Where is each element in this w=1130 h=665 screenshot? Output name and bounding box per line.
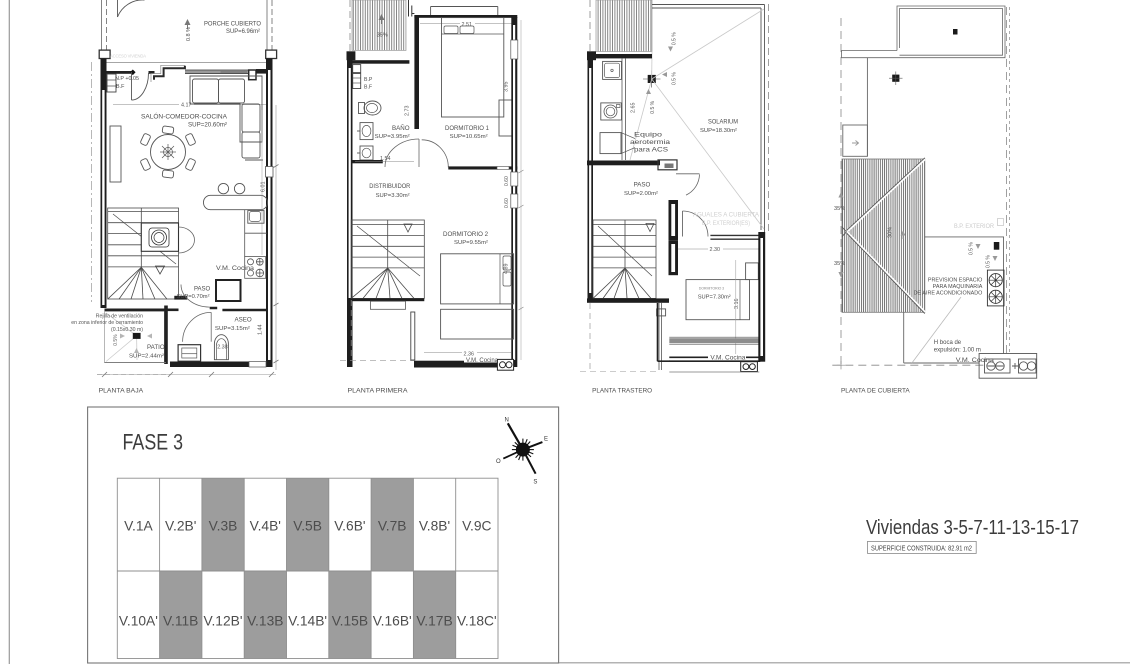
svg-text:FASE 3: FASE 3 <box>123 430 184 455</box>
svg-text:0.60: 0.60 <box>504 176 510 186</box>
svg-text:2.38: 2.38 <box>217 344 228 350</box>
svg-text:SUP=3.95m²: SUP=3.95m² <box>375 134 410 140</box>
svg-text:V.11B: V.11B <box>163 614 198 629</box>
svg-text:B.F: B.F <box>116 84 125 90</box>
svg-text:2.73: 2.73 <box>405 106 411 117</box>
svg-text:PATIO: PATIO <box>147 344 165 351</box>
svg-text:DORMITORIO 3: DORMITORIO 3 <box>699 286 724 290</box>
svg-text:V.15B: V.15B <box>332 614 368 629</box>
svg-text:PREVISION ESPACIO: PREVISION ESPACIO <box>928 278 982 284</box>
svg-text:DORMITORIO 1: DORMITORIO 1 <box>445 125 489 132</box>
svg-text:E: E <box>544 437 548 443</box>
svg-text:0.5%: 0.5% <box>113 334 119 346</box>
svg-text:1.54: 1.54 <box>380 156 391 162</box>
svg-text:PASO: PASO <box>634 182 651 189</box>
svg-text:SUP=7.30m²: SUP=7.30m² <box>698 294 731 300</box>
svg-text:SALÓN-COMEDOR-COCINA: SALÓN-COMEDOR-COCINA <box>141 112 228 121</box>
svg-text:35%: 35% <box>377 32 388 38</box>
svg-text:0.5 %: 0.5 % <box>650 100 656 113</box>
svg-text:V.M. Cocina: V.M. Cocina <box>216 266 255 272</box>
svg-text:N: N <box>505 418 509 424</box>
svg-text:1.44: 1.44 <box>258 325 264 336</box>
svg-text:3.16: 3.16 <box>734 299 740 310</box>
svg-text:V.17B: V.17B <box>416 614 452 629</box>
svg-text:SUP=18.30m²: SUP=18.30m² <box>700 128 737 134</box>
svg-text:V.9C: V.9C <box>462 519 491 534</box>
svg-text:PLANTA DE CUBIERTA: PLANTA DE CUBIERTA <box>841 388 910 395</box>
svg-text:0.5 %: 0.5 % <box>672 32 678 45</box>
svg-text:3.95: 3.95 <box>504 82 510 93</box>
svg-text:ASEO: ASEO <box>235 317 252 324</box>
svg-text:SUP=10.65m²: SUP=10.65m² <box>450 134 488 140</box>
svg-text:PLANTA BAJA: PLANTA BAJA <box>99 388 144 395</box>
svg-text:V.2B': V.2B' <box>165 519 196 534</box>
svg-text:SUP=0.70m²: SUP=0.70m² <box>177 294 210 300</box>
svg-text:S: S <box>533 479 537 485</box>
svg-text:B.F: B.F <box>364 85 372 91</box>
svg-text:V.18C': V.18C' <box>457 614 497 629</box>
svg-text:0.5 %: 0.5 % <box>986 255 992 268</box>
svg-text:0.60: 0.60 <box>504 198 510 208</box>
svg-text:30%: 30% <box>888 227 894 238</box>
svg-text:PLANTA TRASTERO: PLANTA TRASTERO <box>592 388 652 395</box>
svg-text:V.13B: V.13B <box>247 614 283 629</box>
svg-text:PASO: PASO <box>194 287 211 293</box>
svg-text:V.3B: V.3B <box>209 519 238 534</box>
svg-text:V.14B': V.14B' <box>288 614 327 629</box>
svg-text:V.M. Cocina: V.M. Cocina <box>710 356 746 362</box>
svg-text:Viviendas 3-5-7-11-13-15-17: Viviendas 3-5-7-11-13-15-17 <box>866 517 1079 539</box>
svg-text:0.5 %: 0.5 % <box>969 242 975 255</box>
svg-text:aerotermia: aerotermia <box>630 140 671 146</box>
svg-text:DISTRIBUIDOR: DISTRIBUIDOR <box>369 183 410 190</box>
svg-text:SUP=2.44m²: SUP=2.44m² <box>129 354 164 360</box>
svg-text:Rejilla de ventilación: Rejilla de ventilación <box>96 314 143 320</box>
svg-text:2.51: 2.51 <box>462 22 473 28</box>
svg-text:V.10A': V.10A' <box>119 614 158 629</box>
svg-text:V.M. Cocina: V.M. Cocina <box>466 358 499 364</box>
svg-text:PARA MAQUINARIA: PARA MAQUINARIA <box>933 284 983 290</box>
svg-text:V.5B: V.5B <box>293 519 322 534</box>
svg-text:SUP=3.15m²: SUP=3.15m² <box>215 326 250 332</box>
svg-text:DE AIRE ACONDICIONADO: DE AIRE ACONDICIONADO <box>914 291 983 297</box>
svg-text:SUP=20.60m²: SUP=20.60m² <box>188 123 227 129</box>
svg-text:N.P +0.05: N.P +0.05 <box>115 76 139 82</box>
svg-text:V.8B': V.8B' <box>419 519 450 534</box>
svg-text:PORCHE CUBIERTO: PORCHE CUBIERTO <box>204 21 261 28</box>
svg-text:PLANTA PRIMERA: PLANTA PRIMERA <box>348 388 408 395</box>
svg-text:Equipo: Equipo <box>634 133 663 139</box>
svg-text:35%: 35% <box>834 261 845 267</box>
svg-text:BAÑO: BAÑO <box>392 125 410 132</box>
svg-text:2.30: 2.30 <box>710 247 721 253</box>
svg-text:V.1A: V.1A <box>124 519 153 534</box>
svg-text:SUPERFICIE CONSTRUIDA: 82.91 m: SUPERFICIE CONSTRUIDA: 82.91 m2 <box>871 546 972 553</box>
svg-text:(0.15x0.30 m): (0.15x0.30 m) <box>111 327 143 333</box>
svg-text:V.6B': V.6B' <box>334 519 365 534</box>
svg-text:0.8 %: 0.8 % <box>186 27 192 41</box>
svg-text:H boca de: H boca de <box>934 340 962 346</box>
svg-text:V.12B': V.12B' <box>204 614 243 629</box>
svg-text:V.4B': V.4B' <box>250 519 281 534</box>
svg-text:4.89: 4.89 <box>504 264 510 275</box>
svg-text:SUP=9.55m²: SUP=9.55m² <box>454 240 488 246</box>
svg-text:B.P. EXTERIOR: B.P. EXTERIOR <box>954 224 995 230</box>
svg-text:0.5 %: 0.5 % <box>672 72 678 85</box>
svg-text:35%: 35% <box>834 206 845 212</box>
svg-text:DORMITORIO 2: DORMITORIO 2 <box>443 231 488 238</box>
svg-text:para ACS: para ACS <box>634 148 668 154</box>
svg-text:6.01: 6.01 <box>261 182 267 193</box>
svg-text:B.P: B.P <box>364 77 373 83</box>
svg-text:SUP=3.30m²: SUP=3.30m² <box>376 193 410 199</box>
svg-text:SUP=6.96m²: SUP=6.96m² <box>226 29 260 35</box>
svg-text:expulsión: 1.00 m: expulsión: 1.00 m <box>934 348 981 354</box>
svg-text:en zona inferior de cerramient: en zona inferior de cerramiento <box>71 320 143 326</box>
svg-text:O: O <box>496 459 501 465</box>
svg-text:2.65: 2.65 <box>631 103 637 114</box>
svg-text:SUP=2.00m²: SUP=2.00m² <box>624 191 658 197</box>
svg-text:B.P. EXTERIOR(ES): B.P. EXTERIOR(ES) <box>702 221 750 227</box>
svg-text:SOLARIUM: SOLARIUM <box>708 119 738 126</box>
svg-text:V.7B: V.7B <box>378 519 407 534</box>
svg-text:AGUALES A CUBIERTA: AGUALES A CUBIERTA <box>693 213 759 219</box>
svg-text:ACCESO VIVIENDA: ACCESO VIVIENDA <box>110 54 146 59</box>
svg-text:V.16B': V.16B' <box>373 614 412 629</box>
